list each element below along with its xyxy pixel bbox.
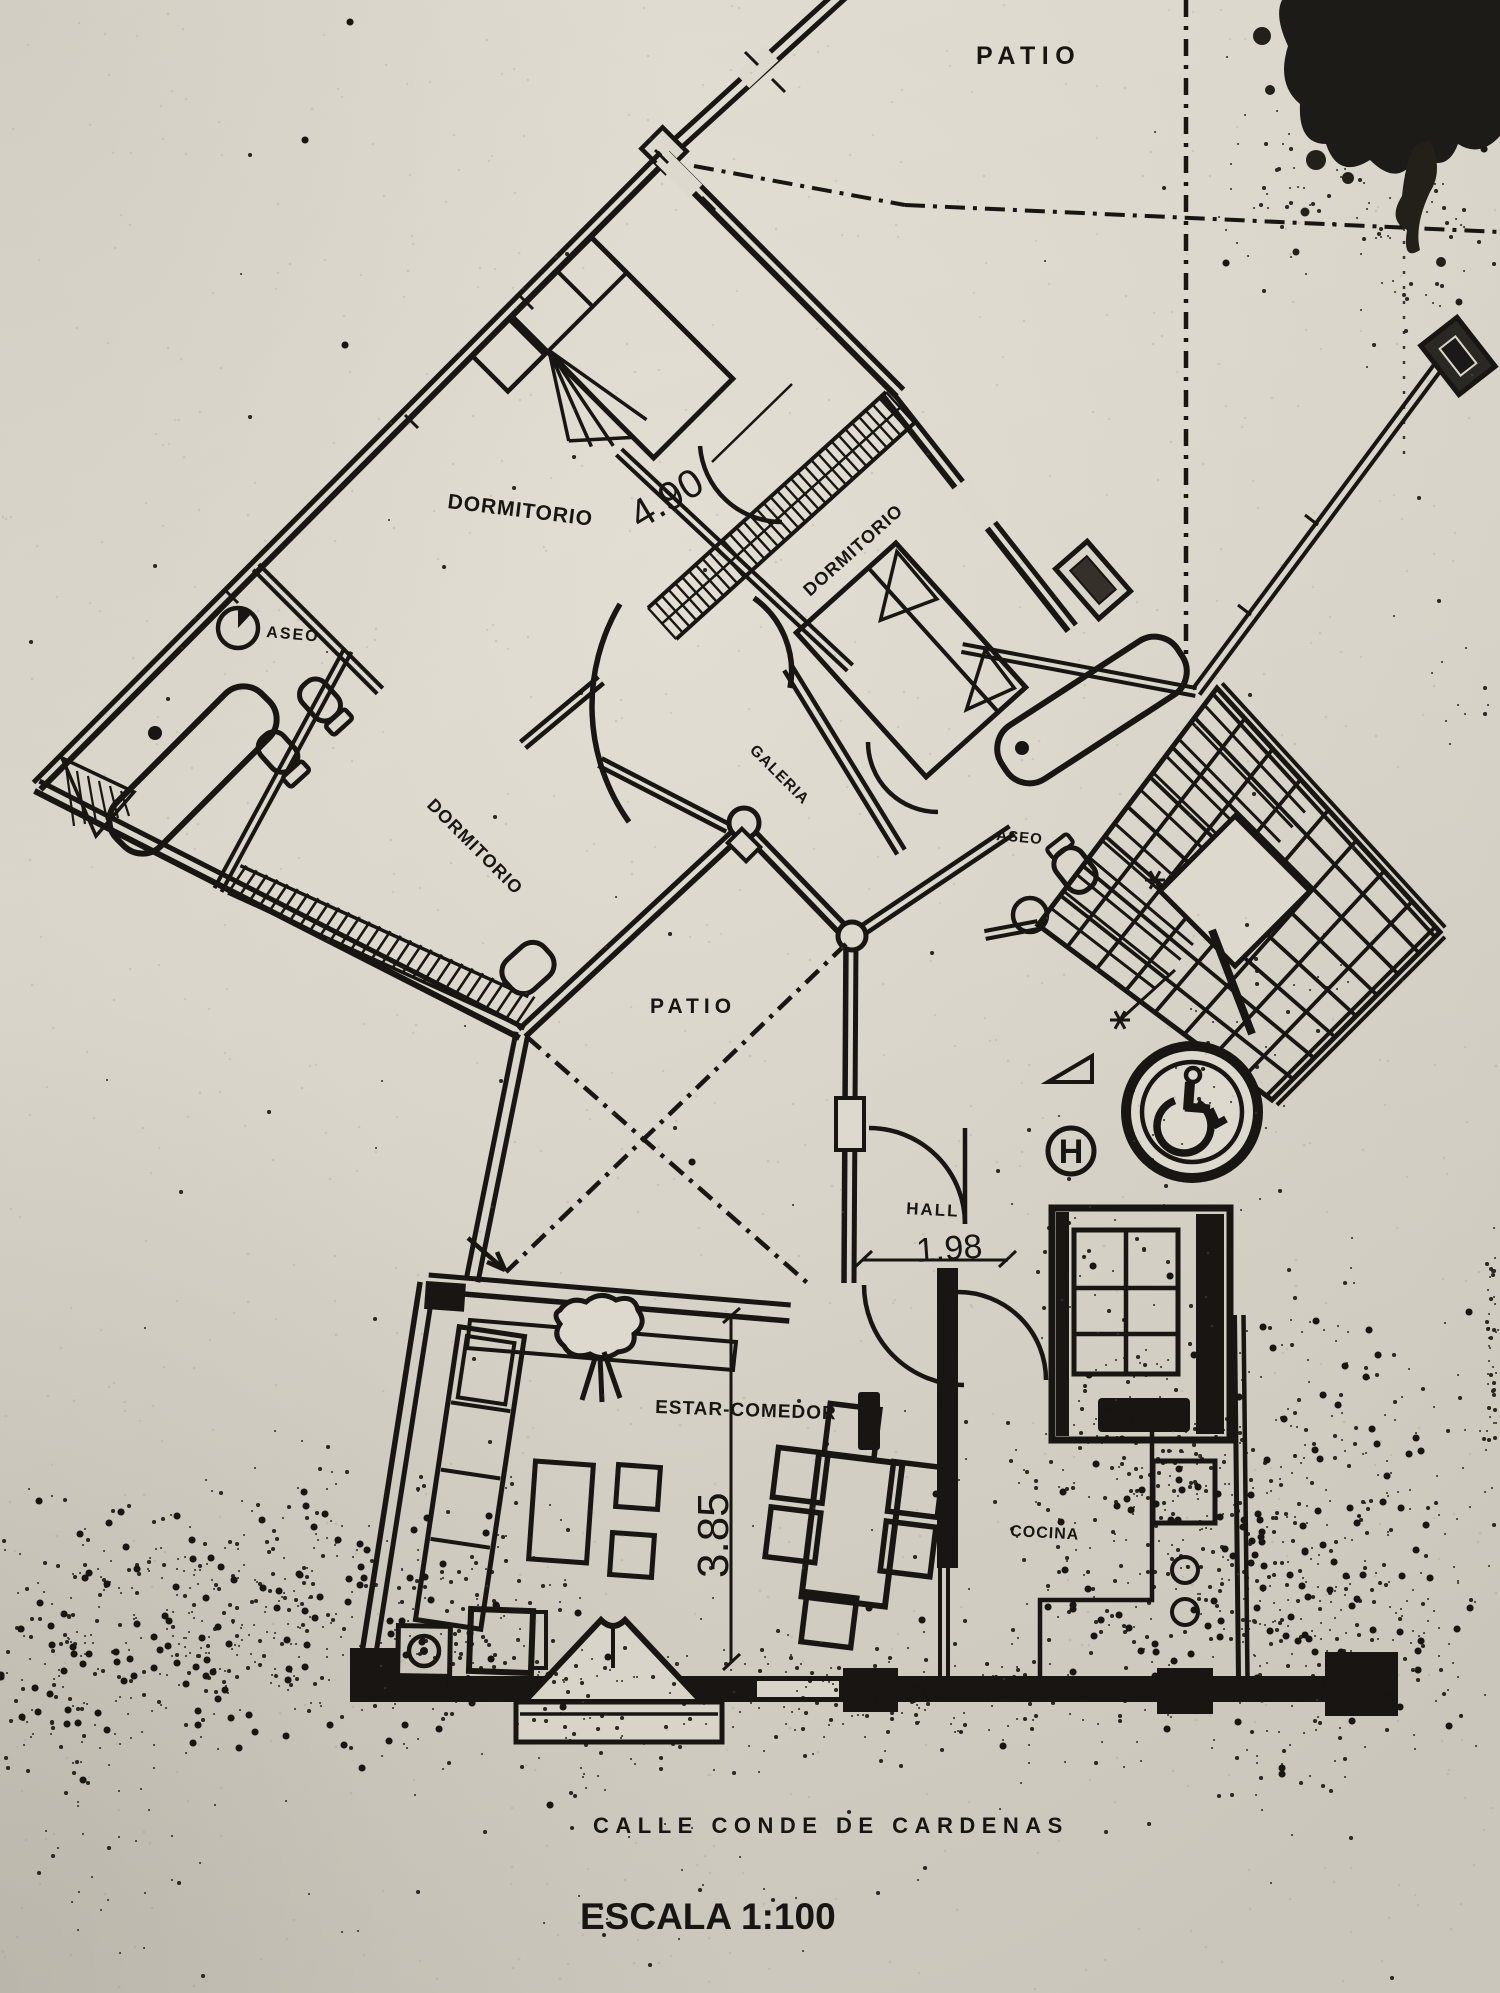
svg-text:3.85: 3.85 (689, 1492, 738, 1578)
svg-text:PATIO: PATIO (650, 995, 736, 1018)
svg-text:1.98: 1.98 (915, 1227, 984, 1270)
svg-text:COCINA: COCINA (1010, 1523, 1080, 1544)
svg-text:H: H (1059, 1133, 1084, 1171)
svg-text:ESCALA 1:100: ESCALA 1:100 (580, 1896, 836, 1937)
svg-text:PATIO: PATIO (976, 42, 1081, 70)
svg-text:HALL: HALL (906, 1199, 960, 1221)
svg-text:CALLE CONDE DE CARDENAS: CALLE CONDE DE CARDENAS (593, 1813, 1069, 1838)
